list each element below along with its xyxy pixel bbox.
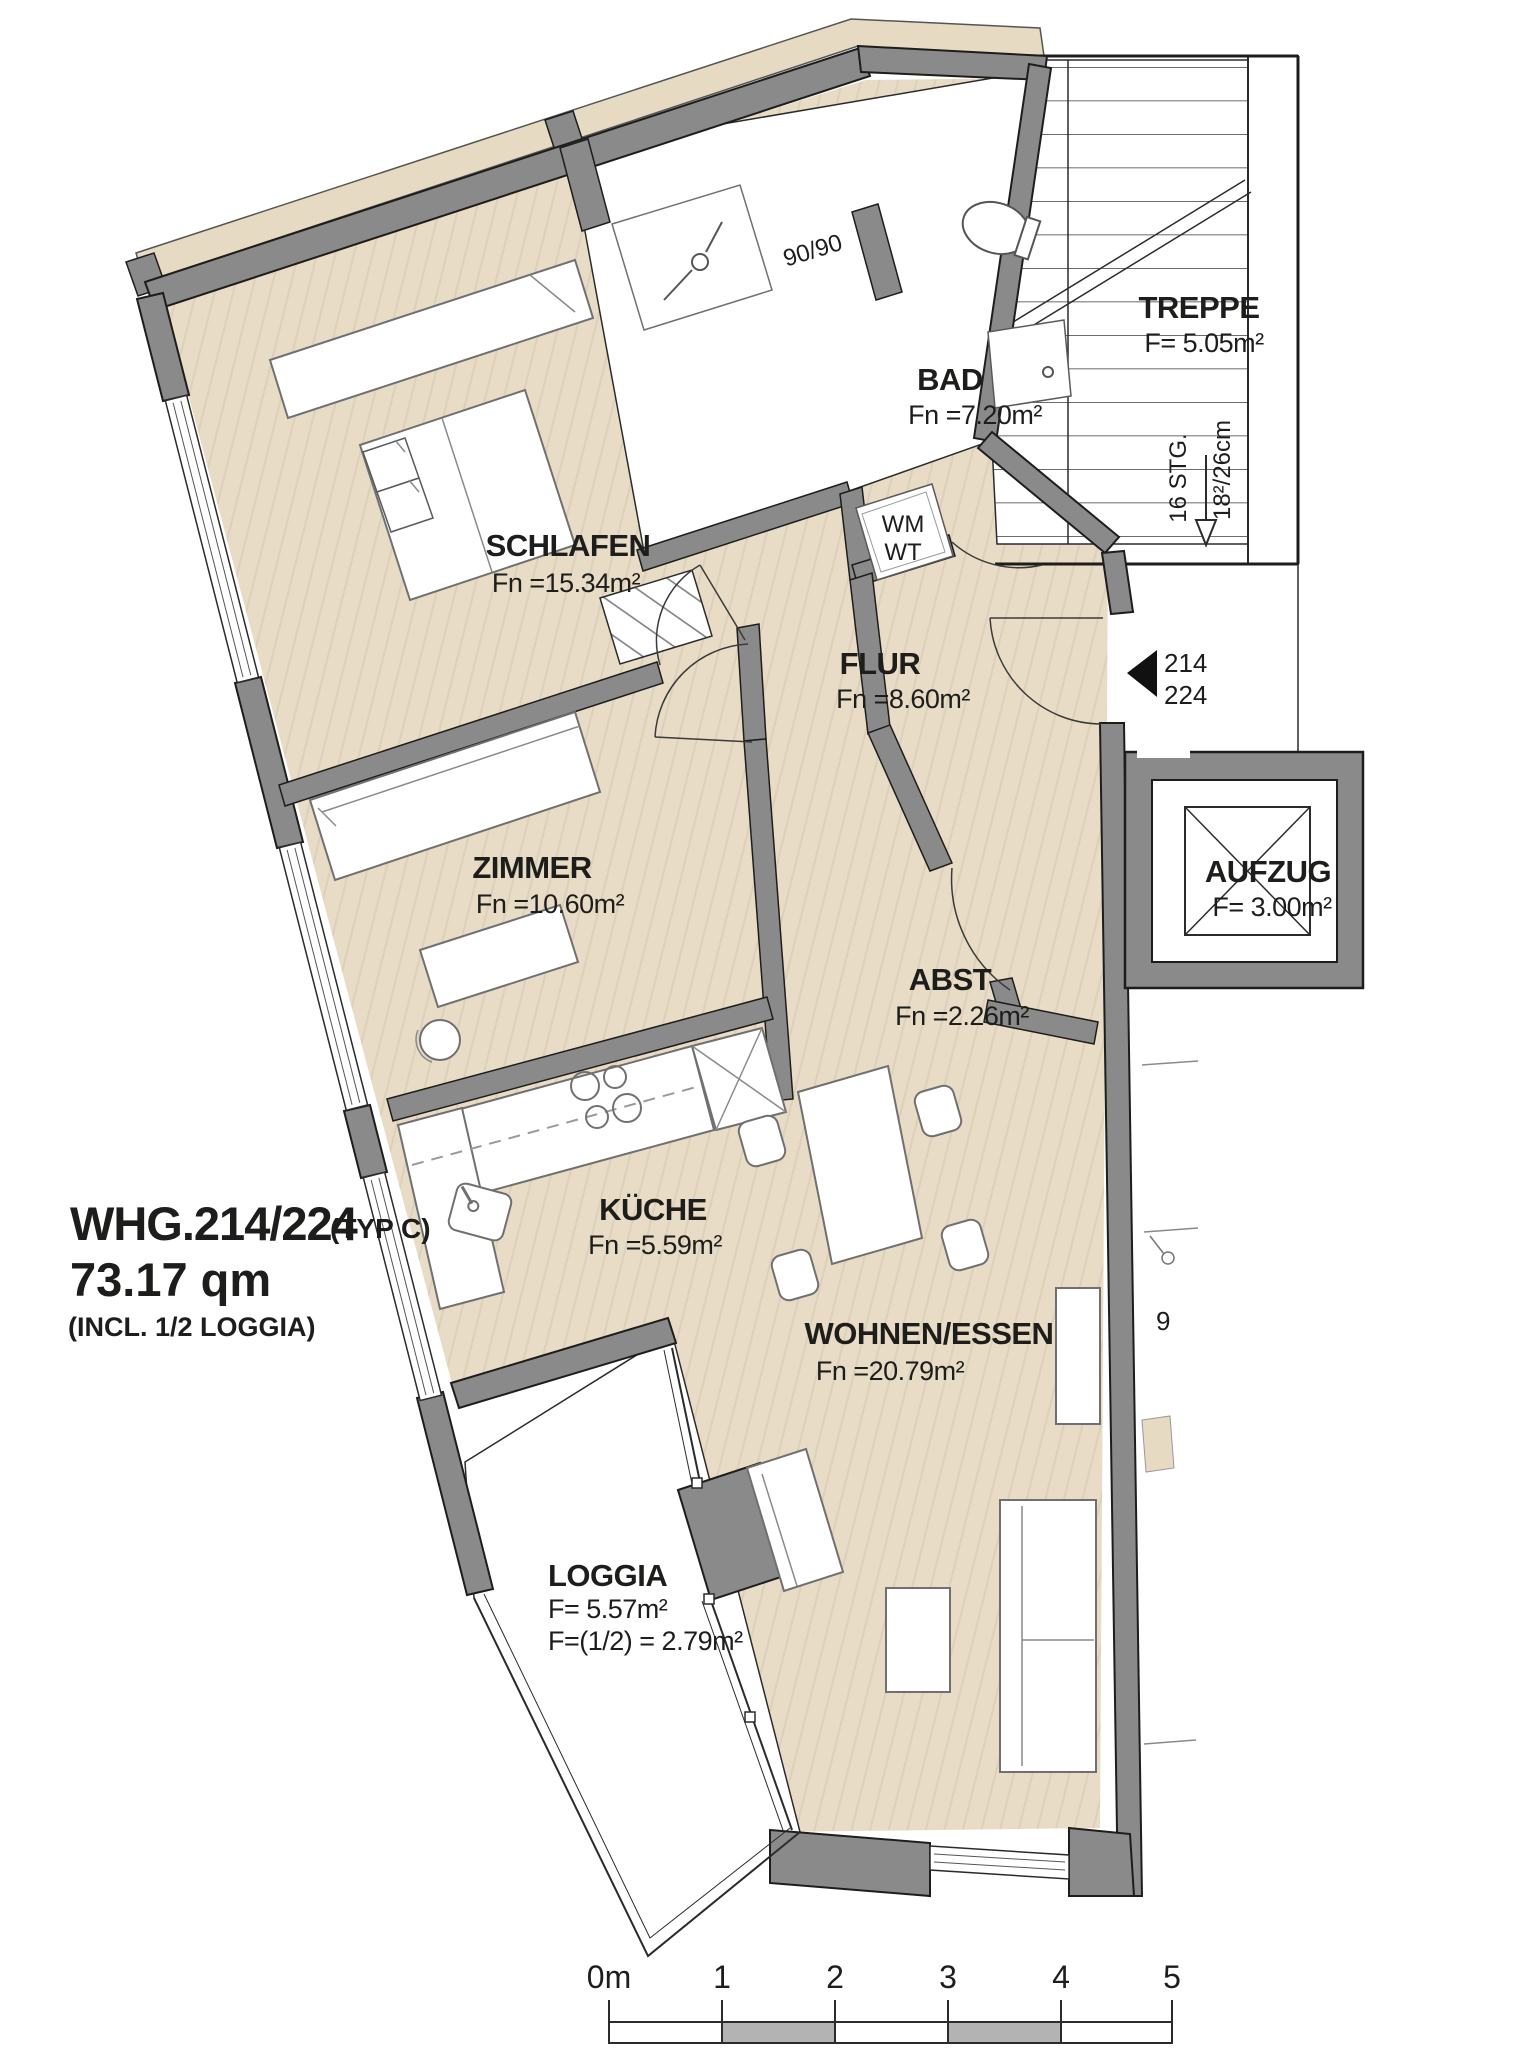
entrance-number-bottom: 224 [1164, 680, 1207, 710]
sofa [1000, 1500, 1096, 1772]
scale-label-0: 0m [587, 1959, 631, 1995]
sideboard [1056, 1288, 1100, 1424]
label-kueche: KÜCHE [599, 1192, 707, 1227]
label-loggia-area-half: F=(1/2) = 2.79m² [548, 1626, 743, 1656]
label-loggia: LOGGIA [548, 1558, 667, 1593]
label-wohnen: WOHNEN/ESSEN [805, 1316, 1054, 1351]
label-wt: WT [884, 539, 922, 566]
label-schlafen-area: Fn =15.34m² [492, 568, 641, 598]
label-abst: ABST [909, 962, 992, 997]
label-loggia-area: F= 5.57m² [548, 1594, 668, 1624]
entrance-number-top: 214 [1164, 648, 1207, 678]
label-treppe: TREPPE [1138, 290, 1259, 325]
coffee-table [886, 1588, 950, 1692]
washbasin-icon [988, 320, 1071, 408]
title-line2: 73.17 qm [70, 1253, 271, 1306]
window-wohnen-south [930, 1846, 1069, 1879]
scale-label-2: 2 [826, 1959, 844, 1995]
label-zimmer: ZIMMER [472, 850, 591, 885]
floor-plan-page: 214 224 9 SCHLAFEN Fn =15.34m² BAD Fn =7… [0, 0, 1536, 2048]
scale-bar: 0m 1 2 3 4 5 [587, 1959, 1181, 2043]
title-block: WHG.214/224 (TYP C) 73.17 qm (INCL. 1/2 … [68, 1197, 431, 1342]
label-aufzug: AUFZUG [1205, 854, 1331, 889]
label-flur-area: Fn =8.60m² [836, 684, 970, 714]
wall-bottom-right [1069, 1828, 1134, 1896]
title-line3: (INCL. 1/2 LOGGIA) [68, 1312, 316, 1342]
label-abst-area: Fn =2.26m² [895, 1001, 1029, 1031]
label-aufzug-area: F= 3.00m² [1212, 892, 1332, 922]
label-kueche-area: Fn =5.59m² [588, 1230, 722, 1260]
label-stair-steps: 16 STG. [1165, 433, 1192, 522]
scale-label-3: 3 [939, 1959, 957, 1995]
label-treppe-area: F= 5.05m² [1144, 328, 1264, 358]
label-bad: BAD [917, 362, 983, 397]
entrance-marker: 214 224 [1127, 648, 1207, 710]
label-stair-riser: 18²/26cm [1209, 420, 1236, 520]
scale-label-5: 5 [1163, 1959, 1181, 1995]
entrance-arrow-icon [1127, 650, 1157, 697]
scale-label-4: 4 [1052, 1959, 1070, 1995]
label-bad-area: Fn =7.20m² [908, 400, 1042, 430]
title-variant: (TYP C) [330, 1213, 431, 1244]
floor-plan-drawing: 214 224 9 SCHLAFEN Fn =15.34m² BAD Fn =7… [0, 0, 1536, 2048]
label-schlafen: SCHLAFEN [486, 528, 651, 563]
scale-label-1: 1 [713, 1959, 731, 1995]
label-wm: WM [882, 511, 925, 538]
label-flur: FLUR [840, 646, 921, 681]
title-line1: WHG.214/224 [70, 1197, 358, 1250]
neighbor-fragments: 9 [1142, 1061, 1198, 1744]
elevator-door-gap [1137, 746, 1190, 758]
label-wohnen-area: Fn =20.79m² [816, 1356, 965, 1386]
neighbor-label-fragment: 9 [1156, 1306, 1170, 1336]
label-zimmer-area: Fn =10.60m² [476, 889, 625, 919]
wall-left-3 [344, 1105, 387, 1178]
wall-bottom-left [770, 1830, 930, 1896]
